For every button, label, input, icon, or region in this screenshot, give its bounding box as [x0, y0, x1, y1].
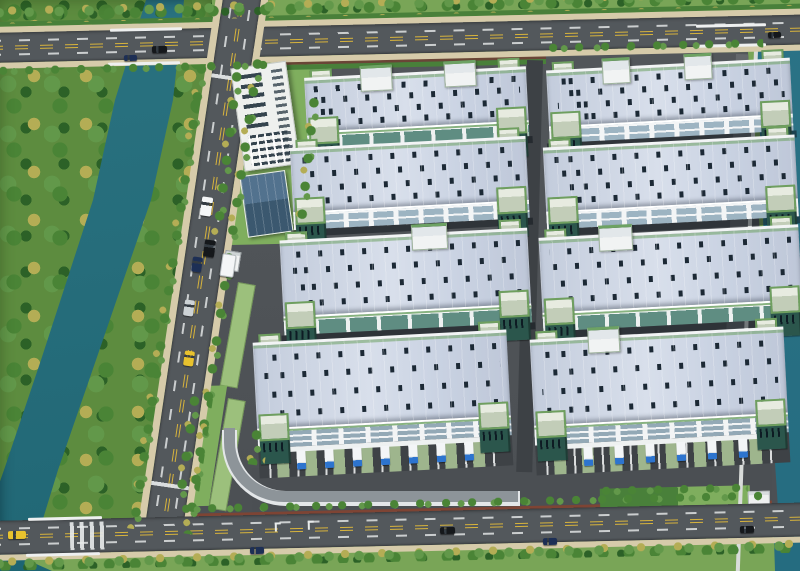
delivery-van[interactable]: [219, 253, 236, 278]
car[interactable]: [768, 32, 781, 38]
car[interactable]: [191, 256, 203, 272]
car[interactable]: [152, 46, 167, 53]
car[interactable]: [183, 350, 195, 366]
car[interactable]: [8, 531, 26, 539]
vehicles: [0, 0, 800, 571]
car[interactable]: [440, 527, 455, 534]
car[interactable]: [183, 299, 195, 316]
car[interactable]: [124, 55, 137, 61]
aerial-rendering-industrial-park: [0, 0, 800, 571]
car[interactable]: [203, 239, 216, 257]
car[interactable]: [250, 547, 264, 554]
car[interactable]: [543, 538, 557, 545]
car[interactable]: [200, 196, 214, 216]
car[interactable]: [740, 526, 754, 533]
